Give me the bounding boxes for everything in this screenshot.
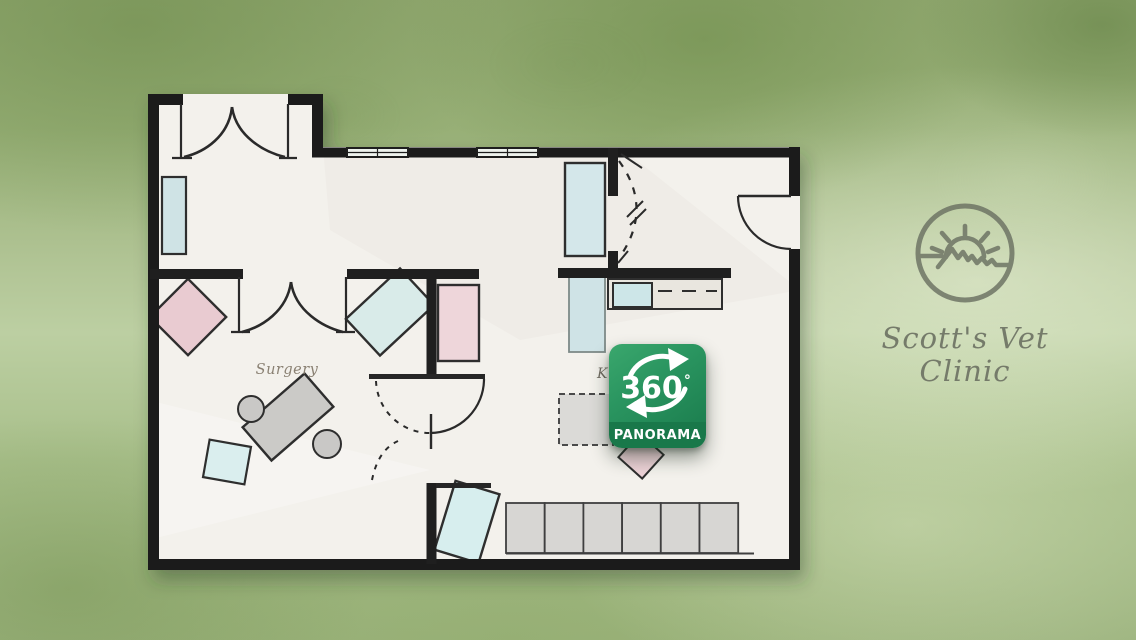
- dashed-gray-unit: [559, 394, 613, 445]
- kennel-cage: [506, 503, 545, 553]
- exam-table-upper: [565, 163, 605, 256]
- panorama-360-badge[interactable]: 360° PANORAMA: [609, 344, 706, 448]
- kennel-cage: [583, 503, 622, 553]
- stool-left: [238, 396, 264, 422]
- exam-table-lower: [569, 276, 605, 352]
- badge-main: 360°: [609, 344, 706, 422]
- panorama-label: PANORAMA: [609, 422, 706, 448]
- clinic-logo: Scott's Vet Clinic: [845, 196, 1085, 388]
- waiting-bench: [162, 177, 186, 254]
- page: Surgery K 360° PANORAMA: [0, 0, 1136, 640]
- surgery-room-label: Surgery: [256, 362, 319, 378]
- clinic-name-line2: Clinic: [845, 355, 1085, 388]
- kennels-room-label: K: [596, 366, 609, 382]
- kennel-row: [506, 503, 754, 554]
- surgery-side-table: [203, 440, 251, 485]
- stool-right: [313, 430, 341, 458]
- clinic-name: Scott's Vet Clinic: [845, 322, 1085, 388]
- kennel-cage: [622, 503, 661, 553]
- sun-mountain-logo-icon: [908, 196, 1022, 310]
- badge-360-number: 360: [620, 371, 683, 406]
- kennel-cage: [700, 503, 739, 553]
- badge-degree-symbol: °: [684, 373, 691, 389]
- pink-cabinet: [438, 285, 479, 361]
- counter-sink: [613, 283, 652, 307]
- badge-360-text: 360°: [609, 367, 701, 405]
- kennel-cage: [661, 503, 700, 553]
- kennel-cage: [545, 503, 584, 553]
- clinic-name-line1: Scott's Vet: [845, 322, 1085, 355]
